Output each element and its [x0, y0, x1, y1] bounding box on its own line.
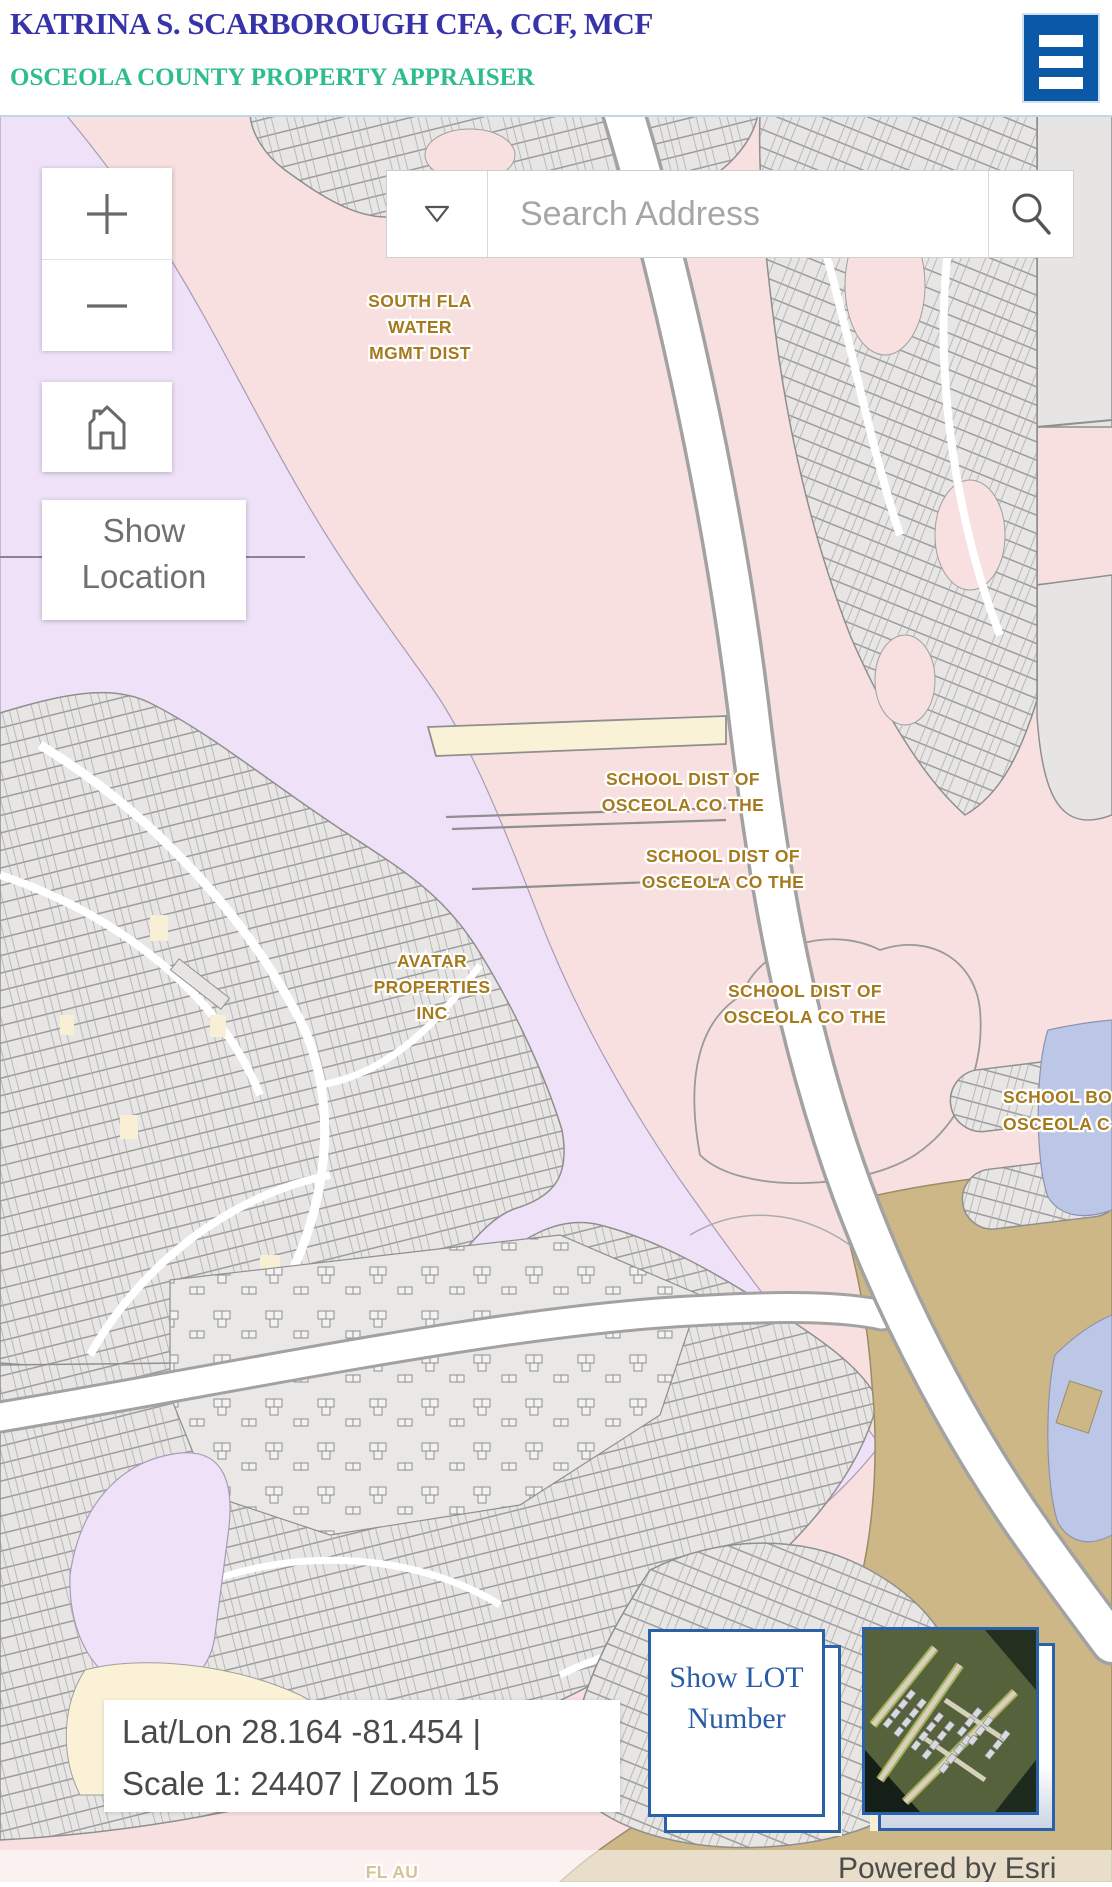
basemap-toggle-button[interactable]	[862, 1627, 1039, 1815]
magnifier-icon	[1007, 190, 1055, 238]
attribution-bar: Powered by Esri	[0, 1850, 1112, 1882]
map-label: PROPERTIES	[374, 977, 491, 997]
aerial-thumbnail	[865, 1630, 1036, 1812]
search-bar	[386, 170, 1074, 258]
chevron-down-icon	[423, 204, 451, 224]
search-type-dropdown[interactable]	[387, 171, 488, 257]
esri-attribution: Powered by Esri	[838, 1852, 1056, 1882]
map-label: SCHOOL DIST OF	[646, 846, 800, 866]
latlon-text: Lat/Lon 28.164 -81.454 |	[122, 1706, 620, 1758]
map-label: SCHOOL BO	[1003, 1087, 1112, 1107]
menu-button[interactable]	[1022, 13, 1100, 103]
map-label: OSCEOLA CO THE	[602, 795, 764, 815]
status-readout: Lat/Lon 28.164 -81.454 | Scale 1: 24407 …	[104, 1700, 620, 1812]
scale-zoom-text: Scale 1: 24407 | Zoom 15	[122, 1758, 620, 1810]
zoom-controls	[42, 168, 172, 350]
page-title: KATRINA S. SCARBOROUGH CFA, CCF, MCF	[10, 6, 653, 42]
map-label: OSCEOLA CO THE	[724, 1007, 886, 1027]
map-label: INC	[416, 1003, 447, 1023]
map-label: OSCEOLA C	[1003, 1114, 1110, 1134]
plus-icon	[84, 191, 130, 237]
page: { "header": { "title": "KATRINA S. SCARB…	[0, 0, 1112, 1882]
map-label: SCHOOL DIST OF	[728, 981, 882, 1001]
zoom-in-button[interactable]	[42, 168, 172, 260]
minus-icon	[84, 283, 130, 329]
map-label: SCHOOL DIST OF	[606, 769, 760, 789]
search-input[interactable]	[518, 194, 988, 235]
basemap-toggle-widget	[862, 1627, 1055, 1832]
zoom-out-button[interactable]	[42, 260, 172, 351]
home-icon	[82, 404, 132, 450]
map-label: SOUTH FLA	[368, 291, 472, 311]
parcel-map: SOUTH FLA WATER MGMT DIST SCHOOL DIST OF…	[0, 115, 1112, 1882]
page-subtitle: OSCEOLA COUNTY PROPERTY APPRAISER	[10, 64, 534, 92]
show-lot-widget: Show LOT Number	[648, 1629, 841, 1833]
map-label: MGMT DIST	[369, 343, 471, 363]
show-location-button[interactable]: Show Location	[42, 500, 246, 620]
search-button[interactable]	[989, 171, 1073, 257]
map-label: AVATAR	[397, 951, 467, 971]
map-label: WATER	[388, 317, 452, 337]
show-lot-button[interactable]: Show LOT Number	[648, 1629, 825, 1817]
app-header: KATRINA S. SCARBOROUGH CFA, CCF, MCF OSC…	[0, 0, 1112, 117]
map-canvas[interactable]: SOUTH FLA WATER MGMT DIST SCHOOL DIST OF…	[0, 115, 1112, 1882]
map-label: OSCEOLA CO THE	[642, 872, 804, 892]
home-button[interactable]	[42, 382, 172, 472]
